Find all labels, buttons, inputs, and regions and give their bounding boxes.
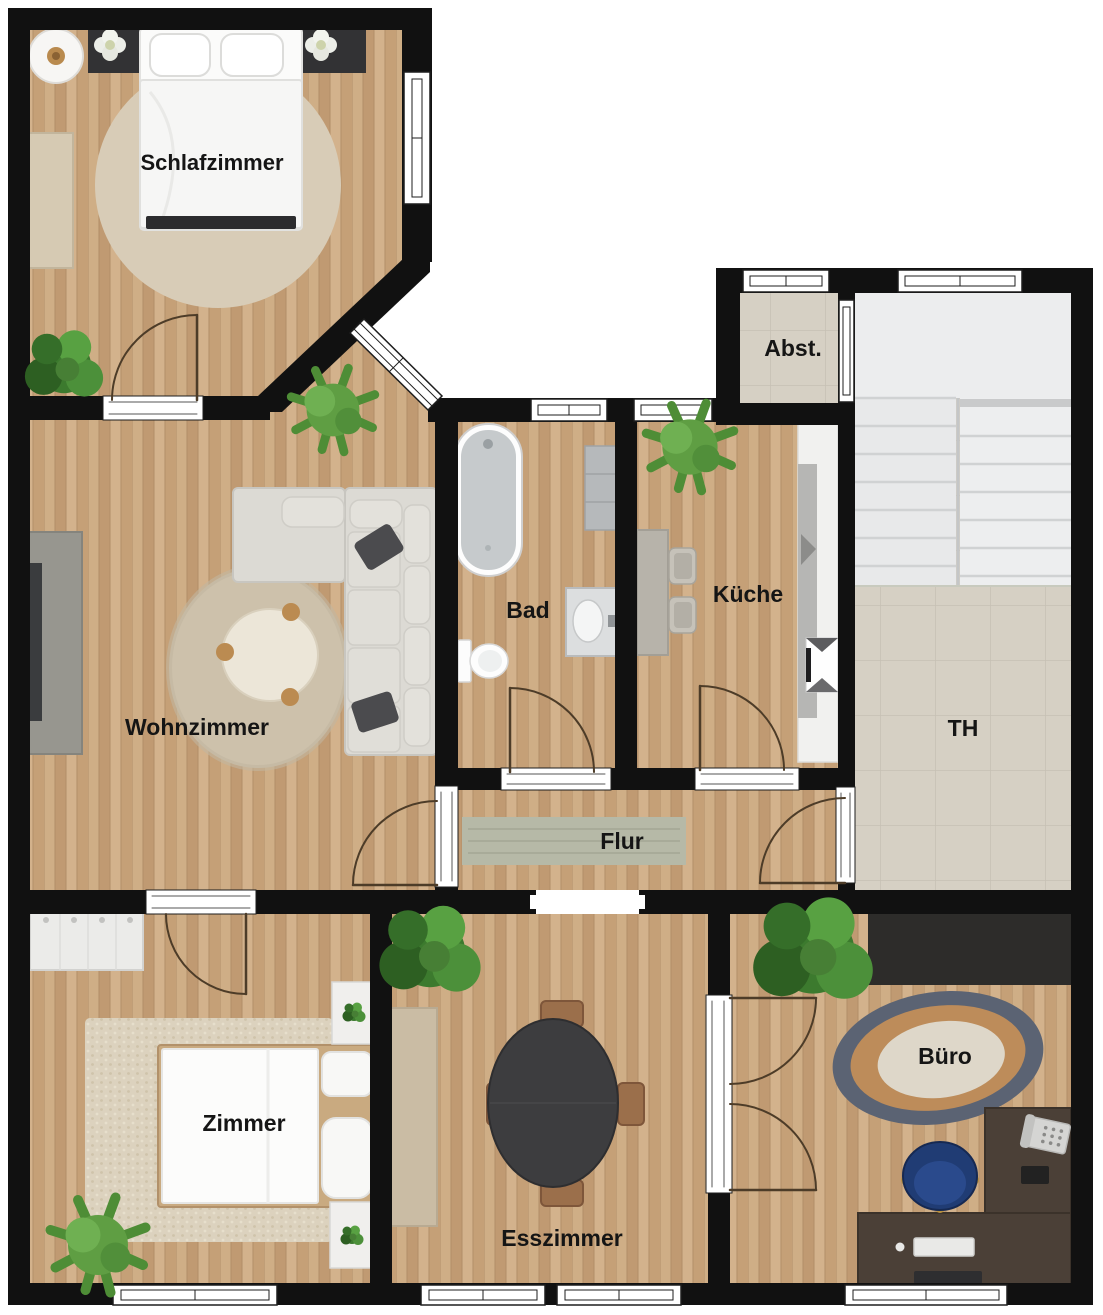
desk-tray bbox=[1021, 1166, 1049, 1184]
window bbox=[404, 72, 430, 204]
window bbox=[531, 399, 607, 421]
coffee-table bbox=[222, 609, 318, 701]
wall bbox=[8, 8, 432, 30]
floor-plan: Schlafzimmer Wohnzimmer Bad Küche Abst. … bbox=[0, 0, 1103, 1315]
kitchen-chair bbox=[669, 548, 696, 584]
mouse bbox=[896, 1243, 905, 1252]
wall bbox=[1071, 268, 1093, 1305]
kitchen-counter bbox=[798, 424, 838, 762]
monitor bbox=[914, 1238, 974, 1256]
room-label-esszimmer: Esszimmer bbox=[501, 1225, 623, 1251]
room-label-treppenhaus: TH bbox=[948, 715, 979, 741]
zimmer-dresser bbox=[30, 912, 143, 970]
room-label-schlafzimmer: Schlafzimmer bbox=[140, 150, 283, 175]
staircase bbox=[855, 292, 1071, 586]
window bbox=[557, 1285, 681, 1305]
window bbox=[743, 270, 829, 292]
window bbox=[898, 270, 1022, 292]
room-label-zimmer: Zimmer bbox=[202, 1110, 285, 1136]
wall bbox=[615, 420, 637, 770]
coffee-table-foot bbox=[281, 688, 299, 706]
double-bed bbox=[140, 28, 302, 230]
room-label-bad: Bad bbox=[506, 597, 549, 623]
window bbox=[113, 1285, 277, 1305]
passage-esszimmer bbox=[530, 890, 645, 914]
room-label-abstellraum: Abst. bbox=[764, 335, 822, 361]
room-label-buero: Büro bbox=[918, 1043, 972, 1069]
room-label-wohnzimmer: Wohnzimmer bbox=[125, 714, 269, 740]
wall bbox=[716, 403, 855, 425]
washbasin bbox=[566, 588, 616, 656]
flur-furniture bbox=[462, 817, 686, 865]
bathroom-cabinet bbox=[585, 446, 618, 530]
bathtub bbox=[455, 424, 522, 576]
round-side-table bbox=[29, 29, 83, 83]
coffee-table-foot bbox=[282, 603, 300, 621]
nightstand bbox=[332, 982, 376, 1044]
bedroom-dresser bbox=[28, 133, 73, 268]
kitchen-table bbox=[637, 530, 668, 655]
dining-table bbox=[488, 1019, 618, 1187]
tv-sideboard bbox=[28, 532, 82, 754]
office-wardrobe bbox=[868, 912, 1071, 985]
window bbox=[421, 1285, 545, 1305]
room-label-flur: Flur bbox=[600, 828, 643, 854]
room-label-kueche: Küche bbox=[713, 581, 783, 607]
floor-plan-page: Schlafzimmer Wohnzimmer Bad Küche Abst. … bbox=[0, 0, 1103, 1315]
coffee-table-foot bbox=[216, 643, 234, 661]
window bbox=[839, 300, 854, 402]
kitchen-stove bbox=[806, 638, 838, 692]
kitchen-chair bbox=[669, 597, 696, 633]
wall bbox=[8, 8, 30, 1305]
nightstand bbox=[330, 1202, 374, 1268]
window bbox=[845, 1285, 1007, 1305]
keyboard bbox=[914, 1271, 982, 1284]
esszimmer-sideboard bbox=[388, 1008, 437, 1226]
